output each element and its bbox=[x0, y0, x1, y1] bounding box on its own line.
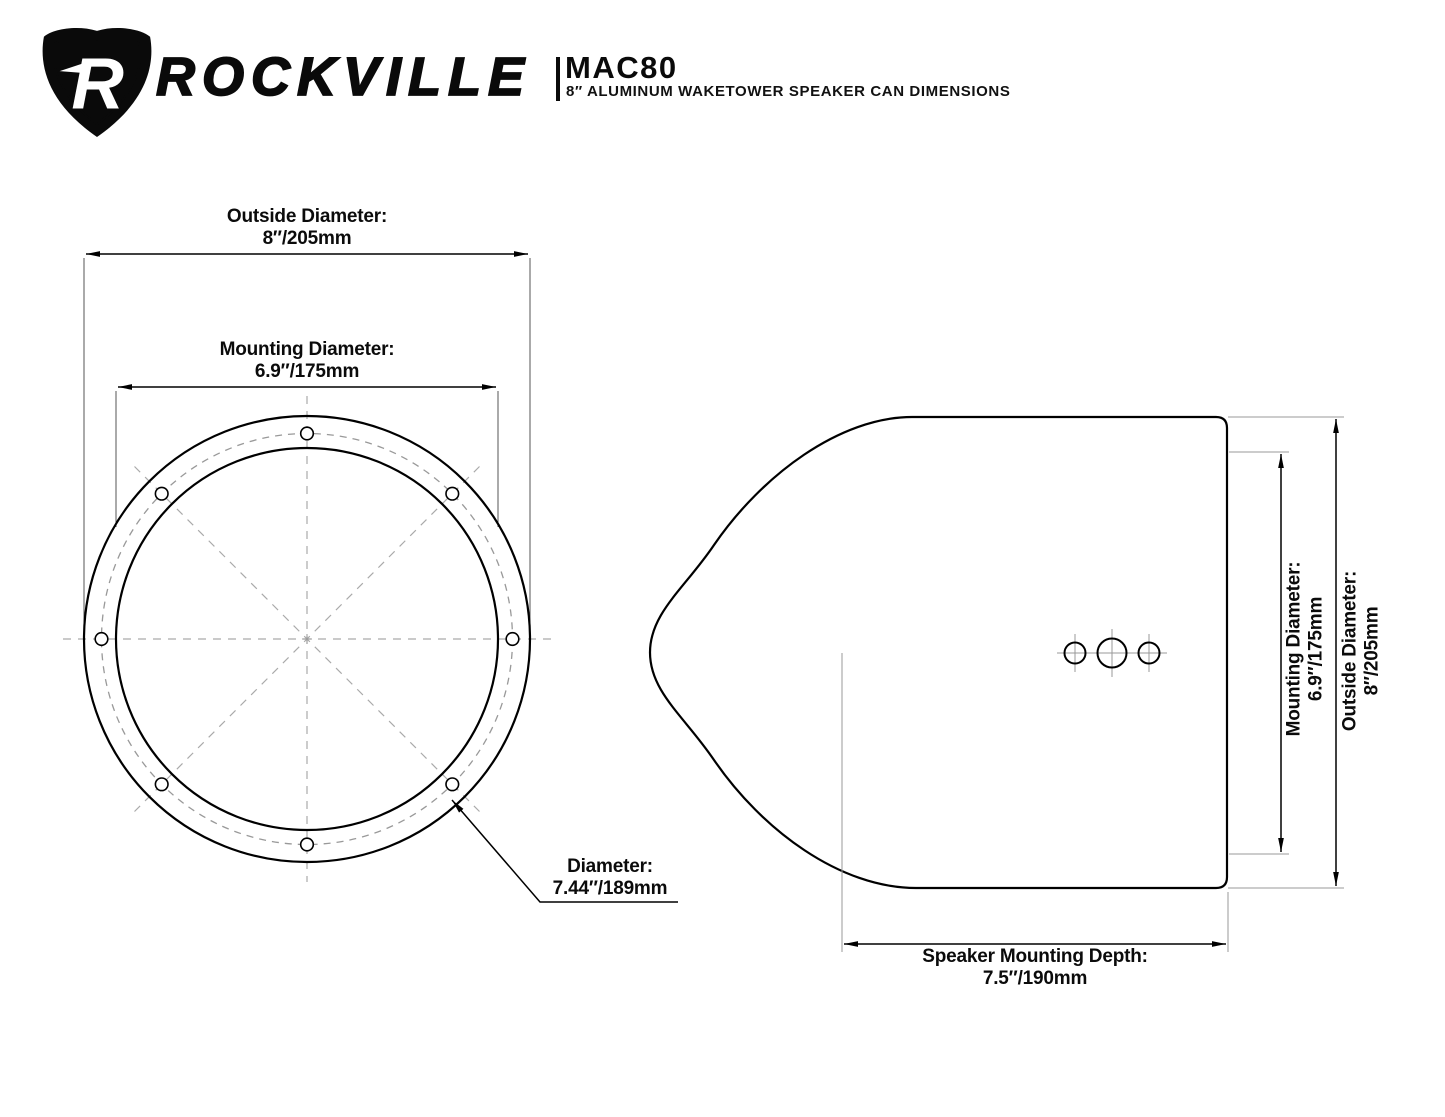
bolt-hole bbox=[301, 838, 314, 851]
dimension-title: Diameter: bbox=[553, 856, 668, 878]
center-mark bbox=[302, 634, 312, 644]
bolt-hole bbox=[301, 427, 314, 440]
dimension-value: 8″/205mm bbox=[227, 228, 387, 250]
side-mounting-diameter-label: Mounting Diameter: 6.9″/175mm bbox=[1284, 562, 1327, 737]
dimension-title: Mounting Diameter: bbox=[1284, 562, 1306, 737]
dimension-title: Outside Diameter: bbox=[1340, 571, 1362, 731]
dimension-sheet: R ROCKVILLE MAC80 8″ ALUMINUM WAKETOWER … bbox=[0, 0, 1445, 1117]
dimension-title: Speaker Mounting Depth: bbox=[922, 946, 1148, 968]
mounting-depth-label: Speaker Mounting Depth: 7.5″/190mm bbox=[922, 946, 1148, 989]
bolt-hole bbox=[446, 487, 459, 500]
dimension-title: Mounting Diameter: bbox=[220, 339, 395, 361]
bolt-hole bbox=[95, 633, 108, 646]
dimension-value: 6.9″/175mm bbox=[1305, 562, 1327, 737]
front-outside-diameter-label: Outside Diameter: 8″/205mm bbox=[227, 206, 387, 249]
bolt-hole bbox=[446, 778, 459, 791]
front-mounting-diameter-label: Mounting Diameter: 6.9″/175mm bbox=[220, 339, 395, 382]
side-view-drawing bbox=[650, 417, 1344, 952]
bolt-circle-diameter-label: Diameter: 7.44″/189mm bbox=[553, 856, 668, 899]
bolt-hole bbox=[506, 633, 519, 646]
dimension-value: 7.5″/190mm bbox=[922, 968, 1148, 990]
technical-drawing bbox=[0, 0, 1445, 1117]
dimension-title: Outside Diameter: bbox=[227, 206, 387, 228]
bolt-hole bbox=[155, 778, 168, 791]
bolt-hole bbox=[155, 487, 168, 500]
dimension-value: 6.9″/175mm bbox=[220, 361, 395, 383]
side-outside-diameter-label: Outside Diameter: 8″/205mm bbox=[1340, 571, 1383, 731]
dimension-value: 7.44″/189mm bbox=[553, 878, 668, 900]
dimension-value: 8″/205mm bbox=[1361, 571, 1383, 731]
